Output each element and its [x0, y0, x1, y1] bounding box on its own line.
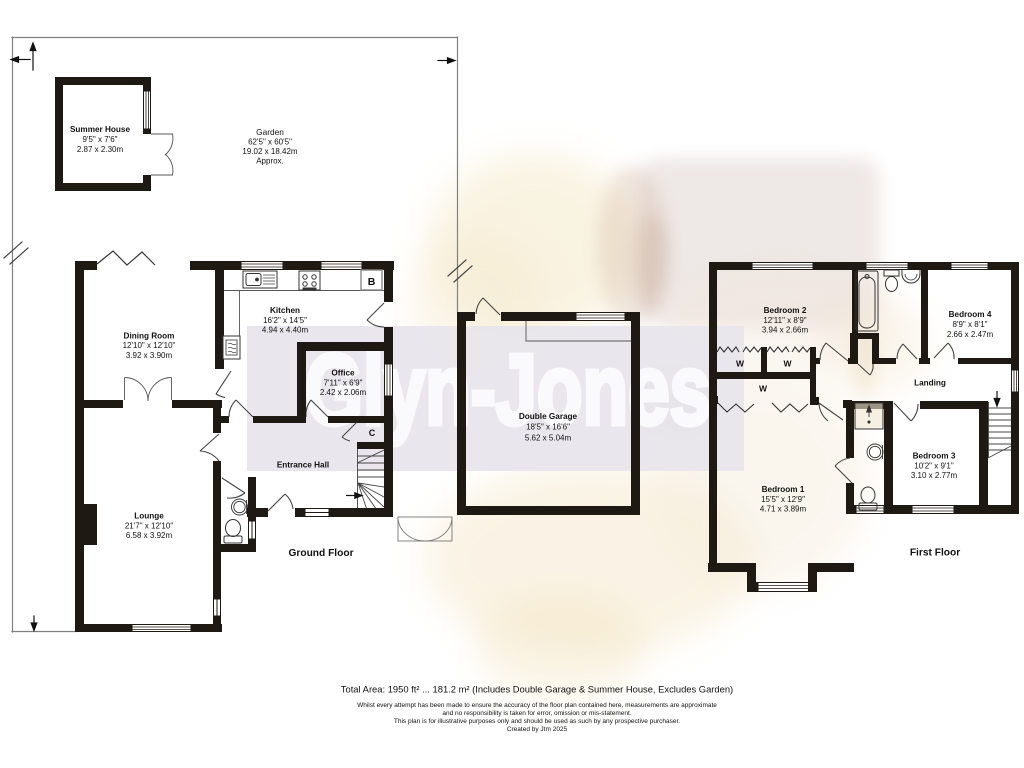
svg-text:B: B: [368, 276, 376, 288]
svg-text:Bedroom 1: Bedroom 1: [762, 485, 805, 494]
svg-text:Kitchen: Kitchen: [270, 306, 300, 315]
svg-text:Ground Floor: Ground Floor: [288, 548, 353, 559]
svg-text:62'5" x 60'5": 62'5" x 60'5": [248, 138, 292, 147]
svg-text:Summer House: Summer House: [70, 125, 131, 134]
svg-text:4.71 x 3.89m: 4.71 x 3.89m: [760, 505, 807, 514]
svg-text:W: W: [736, 359, 745, 369]
svg-text:Total Area: 1950 ft² ... 181.2: Total Area: 1950 ft² ... 181.2 m² (Inclu…: [341, 684, 733, 695]
svg-text:16'2" x 14'5": 16'2" x 14'5": [263, 316, 307, 325]
svg-text:6.58 x 3.92m: 6.58 x 3.92m: [126, 531, 173, 540]
svg-text:Dining Room: Dining Room: [124, 332, 175, 341]
svg-text:and no responsibility is taken: and no responsibility is taken for error…: [442, 710, 631, 717]
svg-text:15'5" x 12'9": 15'5" x 12'9": [761, 495, 805, 504]
svg-text:Landing: Landing: [914, 379, 946, 388]
svg-text:3.94 x 2.66m: 3.94 x 2.66m: [762, 326, 809, 335]
svg-text:10'2" x 9'1": 10'2" x 9'1": [914, 461, 954, 470]
svg-text:Garden: Garden: [256, 127, 284, 137]
svg-text:4.94 x 4.40m: 4.94 x 4.40m: [262, 326, 309, 335]
svg-text:2.42 x 2.06m: 2.42 x 2.06m: [320, 388, 367, 397]
svg-text:Bedroom 2: Bedroom 2: [764, 306, 807, 315]
svg-text:Whilst every attempt has been: Whilst every attempt has been made to en…: [357, 702, 717, 709]
svg-text:Approx.: Approx.: [256, 157, 284, 166]
svg-text:C: C: [369, 428, 376, 438]
svg-text:8'9" x 8'1": 8'9" x 8'1": [953, 320, 988, 329]
svg-text:Bedroom 3: Bedroom 3: [913, 452, 956, 461]
svg-text:12'11" x 8'9": 12'11" x 8'9": [763, 316, 806, 325]
svg-text:12'10" x 12'10": 12'10" x 12'10": [123, 341, 176, 350]
svg-text:Office: Office: [331, 369, 355, 378]
svg-text:First Floor: First Floor: [910, 548, 960, 559]
svg-text:Double Garage: Double Garage: [519, 412, 578, 421]
svg-text:Lounge: Lounge: [134, 512, 164, 521]
svg-text:This plan is for illustrative: This plan is for illustrative purposes o…: [394, 718, 680, 725]
svg-text:2.87 x 2.30m: 2.87 x 2.30m: [77, 145, 124, 154]
svg-text:W: W: [759, 384, 768, 394]
svg-text:18'5" x 16'6": 18'5" x 16'6": [526, 423, 570, 432]
svg-text:9'5" x 7'6": 9'5" x 7'6": [83, 135, 118, 144]
svg-text:Created by Jtm 2025: Created by Jtm 2025: [507, 726, 568, 733]
svg-text:Bedroom 4: Bedroom 4: [949, 310, 992, 319]
svg-text:19.02 x 18.42m: 19.02 x 18.42m: [242, 147, 297, 156]
svg-text:3.10 x 2.77m: 3.10 x 2.77m: [911, 471, 958, 480]
svg-text:W: W: [783, 359, 792, 369]
svg-text:7'11" x 6'9": 7'11" x 6'9": [324, 378, 363, 387]
svg-text:21'7" x 12'10": 21'7" x 12'10": [125, 521, 173, 530]
svg-text:2.66 x 2.47m: 2.66 x 2.47m: [947, 330, 994, 339]
svg-text:3.92 x 3.90m: 3.92 x 3.90m: [126, 351, 173, 360]
svg-text:5.62 x 5.04m: 5.62 x 5.04m: [525, 434, 572, 443]
svg-text:Entrance Hall: Entrance Hall: [277, 461, 329, 470]
